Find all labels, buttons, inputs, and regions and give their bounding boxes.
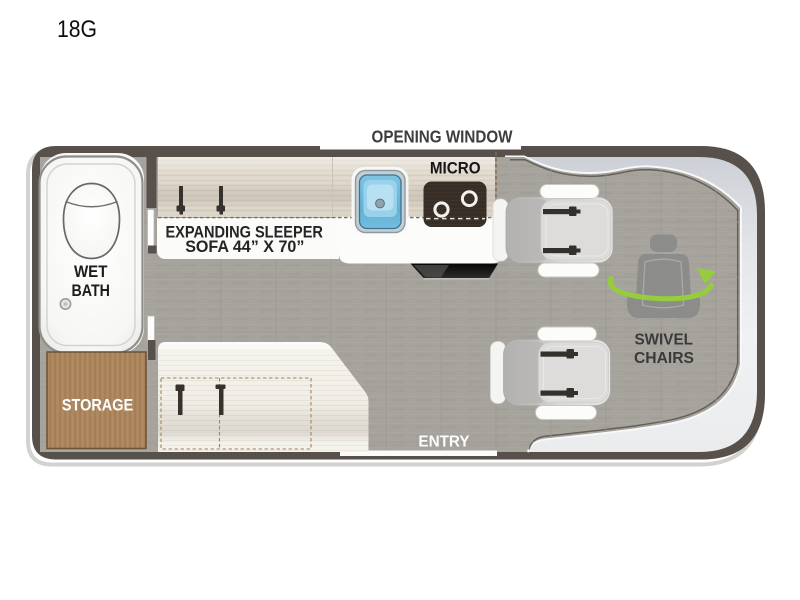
svg-text:OPENING WINDOW: OPENING WINDOW (372, 127, 514, 147)
svg-text:CHAIRS: CHAIRS (634, 350, 694, 367)
svg-text:WET: WET (74, 263, 108, 281)
svg-text:ENTRY: ENTRY (418, 433, 470, 450)
svg-text:STORAGE: STORAGE (62, 396, 133, 414)
svg-text:MICRO: MICRO (430, 159, 481, 177)
svg-text:18G: 18G (57, 16, 97, 43)
svg-text:SOFA 44” X 70”: SOFA 44” X 70” (185, 237, 304, 256)
svg-text:SWIVEL: SWIVEL (634, 332, 693, 349)
svg-text:BATH: BATH (71, 282, 110, 300)
